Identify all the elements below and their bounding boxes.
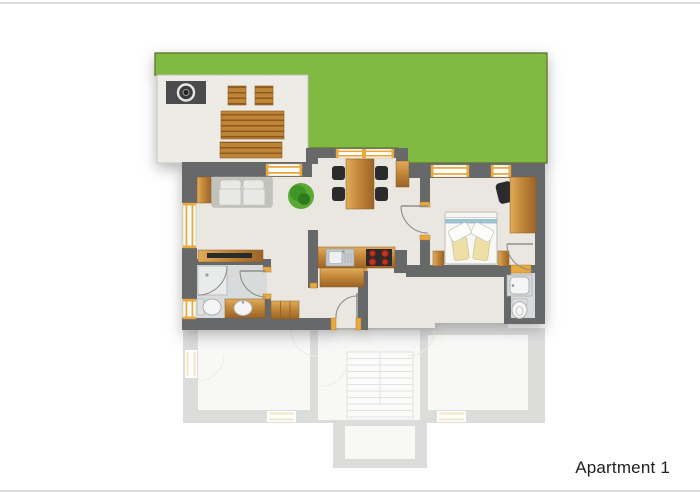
hall-wardrobe <box>271 301 299 319</box>
lower-left-room <box>198 330 310 410</box>
garden-table <box>221 111 284 139</box>
tv-board <box>198 250 263 262</box>
kitchen-sink <box>326 249 354 266</box>
bedroom-window-2 <box>491 165 511 177</box>
garden-bench <box>220 142 282 158</box>
apartment-unit <box>155 53 547 330</box>
side-table <box>197 177 211 203</box>
dining-chair-1 <box>332 166 345 180</box>
washbasin <box>225 299 265 318</box>
nightstand-left <box>433 251 444 266</box>
second-washbasin <box>507 275 532 296</box>
floor-plan-image <box>0 0 700 500</box>
living-room-side-window <box>183 203 196 248</box>
living-room-window <box>266 164 302 176</box>
stove <box>366 249 392 266</box>
dining-window <box>336 149 394 158</box>
sideboard <box>396 161 409 187</box>
dining-chair-4 <box>375 187 388 201</box>
floor-plan-page: Apartment 1 <box>0 0 700 500</box>
garden-stool-1 <box>228 86 246 105</box>
lower-porch <box>345 426 415 459</box>
sofa <box>212 177 272 207</box>
nightstand-right <box>498 251 509 266</box>
kitchen-cabinet <box>320 268 364 287</box>
dining-chair-3 <box>375 166 388 180</box>
bathroom-window <box>183 299 196 319</box>
double-bed <box>445 212 497 264</box>
grill <box>166 81 206 104</box>
bedroom-window-1 <box>431 165 469 177</box>
garden-stool-2 <box>255 86 273 105</box>
tv <box>207 253 252 258</box>
toilet <box>197 299 221 315</box>
staircase <box>347 352 413 420</box>
shower <box>198 266 227 295</box>
plant <box>288 183 314 209</box>
lower-right-room <box>428 335 528 410</box>
second-toilet <box>512 299 527 319</box>
desk <box>510 177 536 233</box>
unit-label: Apartment 1 <box>575 458 670 478</box>
dining-chair-2 <box>332 187 345 201</box>
dining-table <box>346 159 374 209</box>
